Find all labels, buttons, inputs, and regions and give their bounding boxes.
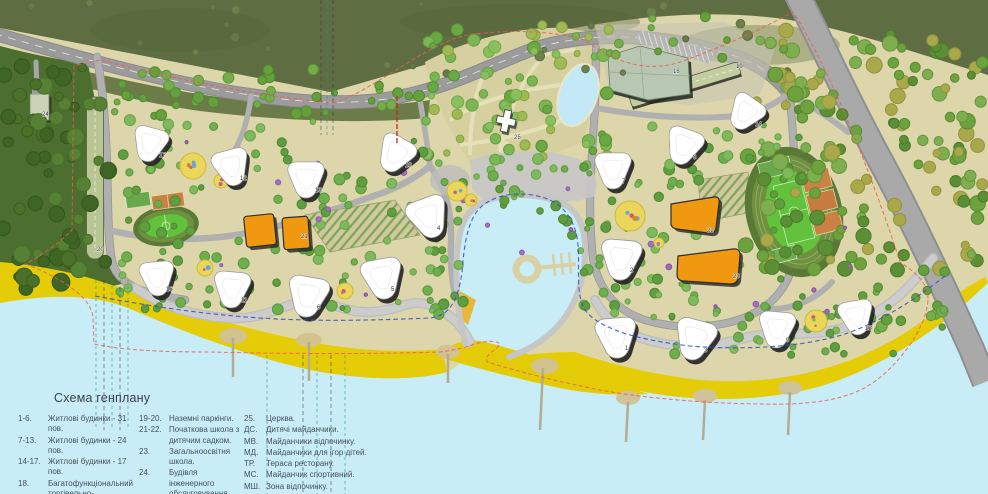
tree <box>231 33 240 42</box>
playground-equipment <box>219 182 223 186</box>
building-number-label: 12 <box>240 176 247 182</box>
tree <box>683 36 689 42</box>
tree <box>345 201 352 208</box>
legend-item: 7-13.Житлові будинки - 24 пов. <box>18 436 136 457</box>
tree <box>585 218 593 226</box>
tree <box>163 119 174 130</box>
tree <box>554 57 566 69</box>
tree <box>914 160 923 169</box>
tree <box>874 283 883 292</box>
tree <box>223 72 234 83</box>
tree <box>542 47 547 52</box>
tree <box>427 297 433 303</box>
legend: Схема генплану 1-6.Житлові будинки - 31 … <box>18 391 448 414</box>
tree <box>212 253 222 263</box>
tree <box>393 88 403 98</box>
tree <box>572 33 579 40</box>
tree <box>620 70 625 75</box>
legend-item: МВ.Майданчики відпочинку. <box>244 437 404 447</box>
facility-number-label: 19 <box>736 64 743 70</box>
tree <box>825 309 830 314</box>
tree <box>801 143 811 153</box>
legend-item-desc: Майданчики для ігор дітей. <box>266 448 404 458</box>
playground-equipment <box>454 191 457 194</box>
legend-item: МД.Майданчики для ігор дітей. <box>244 448 404 458</box>
tree <box>830 343 839 352</box>
tree <box>900 135 909 144</box>
legend-item-desc: Багатофункціональнийторгівельно-розважал… <box>48 479 136 494</box>
school-22 <box>671 197 722 236</box>
playground <box>197 260 213 276</box>
tree <box>69 148 81 160</box>
tree <box>340 221 349 230</box>
legend-item-desc: Житлові будинки - 24 пов. <box>48 436 136 457</box>
legend-item-desc: Церква. <box>266 414 404 424</box>
tree <box>170 196 180 206</box>
tree <box>656 292 662 298</box>
tree <box>778 276 784 282</box>
tree <box>434 309 444 319</box>
tree <box>62 229 77 244</box>
tree <box>552 50 560 58</box>
legend-item-desc: Будівля інженерногообслуговування. <box>169 468 241 494</box>
tree <box>342 273 348 279</box>
tree <box>411 138 416 143</box>
tree <box>758 173 771 186</box>
tree <box>568 231 577 240</box>
tree <box>283 155 292 164</box>
tree <box>940 267 950 277</box>
playground-equipment <box>203 268 206 271</box>
tree <box>183 121 191 129</box>
tree <box>971 139 985 153</box>
tree <box>734 332 744 342</box>
tree <box>543 105 552 114</box>
tree <box>40 128 53 141</box>
tree <box>949 48 961 60</box>
tree <box>458 296 468 306</box>
tree <box>428 93 434 99</box>
tree <box>580 163 589 172</box>
tree <box>50 111 63 124</box>
tree <box>761 302 769 310</box>
tree <box>977 179 988 190</box>
tree <box>277 138 286 147</box>
legend-item-key: 24. <box>139 468 169 494</box>
legend-title: Схема генплану <box>54 391 448 405</box>
tree <box>531 48 538 55</box>
tree <box>364 293 367 296</box>
tree <box>894 214 906 226</box>
building-number-label: 15 <box>865 326 872 332</box>
playground <box>180 153 206 179</box>
tree <box>856 228 871 243</box>
tree <box>418 1 424 7</box>
legend-item: 25.Церква. <box>244 414 404 424</box>
tree <box>172 101 179 108</box>
tree <box>83 98 95 110</box>
tree <box>908 76 917 85</box>
tree <box>713 311 718 316</box>
facility-number-label: 20 <box>97 247 104 253</box>
tree <box>156 303 162 309</box>
legend-item-key: 21-22. <box>139 425 169 446</box>
tree <box>611 50 620 59</box>
tree <box>782 168 793 179</box>
legend-item: ТР.Тераса ресторану. <box>244 459 404 469</box>
playground <box>654 238 664 248</box>
tree <box>759 139 764 144</box>
tree <box>210 123 218 131</box>
tree <box>648 122 657 131</box>
tree <box>357 177 367 187</box>
tree <box>758 149 764 155</box>
tree <box>753 301 759 307</box>
tree <box>817 69 826 78</box>
tree <box>49 192 62 205</box>
tree <box>746 154 754 162</box>
tree <box>440 255 448 263</box>
playground <box>615 201 645 231</box>
tree <box>448 70 459 81</box>
tree <box>866 44 876 54</box>
tree <box>433 268 442 277</box>
legend-item-key: 25. <box>244 414 266 424</box>
tree <box>490 134 500 144</box>
tree <box>27 152 41 166</box>
tree <box>653 274 663 284</box>
tree <box>428 82 439 93</box>
tree <box>785 72 795 82</box>
legend-item: 14-17.Житлові будинки - 17 пов. <box>18 457 136 478</box>
building-number-label: 10 <box>405 163 412 169</box>
playground-equipment <box>472 200 475 203</box>
tree <box>533 154 544 165</box>
tree <box>122 91 131 100</box>
tree <box>22 126 33 137</box>
tree <box>965 170 976 181</box>
tree <box>456 135 464 143</box>
tree <box>82 195 98 211</box>
tree <box>599 288 608 297</box>
tree <box>682 283 690 291</box>
tree <box>971 212 984 225</box>
tree <box>648 25 654 31</box>
tree <box>649 15 656 22</box>
tree <box>569 228 573 232</box>
tree <box>124 115 135 126</box>
tree <box>125 217 131 223</box>
legend-item-key: ТР. <box>244 459 266 469</box>
tree <box>939 324 945 330</box>
tree <box>190 186 198 194</box>
tree <box>934 137 943 146</box>
tree <box>791 188 801 198</box>
building-number-label: 16 <box>166 287 173 293</box>
tree <box>193 92 204 103</box>
tree <box>425 247 433 255</box>
tree <box>846 251 857 262</box>
tree <box>768 67 783 82</box>
legend-item-key: 7-13. <box>18 436 48 457</box>
tree <box>474 174 480 180</box>
tree <box>635 182 640 187</box>
tree <box>977 57 988 69</box>
tree <box>157 228 167 238</box>
tree <box>810 210 825 225</box>
tree <box>927 35 938 46</box>
tree <box>743 31 753 41</box>
tree <box>634 278 641 285</box>
tree <box>456 206 462 212</box>
tree <box>958 196 970 208</box>
tree <box>556 22 567 33</box>
tree <box>150 67 161 78</box>
tree <box>848 265 851 268</box>
tree <box>918 135 928 145</box>
tree <box>756 338 763 345</box>
tree <box>423 286 432 295</box>
tree <box>912 294 920 302</box>
legend-item-desc: Майданчик спортивний. <box>266 470 404 480</box>
tree <box>669 313 675 319</box>
tree <box>910 62 920 72</box>
tree <box>319 193 330 204</box>
playground <box>465 194 477 206</box>
tree <box>765 260 780 275</box>
tree <box>430 43 436 49</box>
tree <box>957 111 968 122</box>
tree <box>312 92 321 101</box>
legend-item: МШ.Зона відпочинку. <box>244 482 404 492</box>
tree <box>138 70 146 78</box>
tree <box>526 29 536 39</box>
tree <box>858 292 867 301</box>
legend-item-key: МШ. <box>244 482 266 492</box>
playground-equipment <box>625 211 629 215</box>
tree <box>439 247 446 254</box>
tree <box>443 45 454 56</box>
tree <box>599 134 611 146</box>
tree <box>954 147 963 156</box>
tree <box>889 118 899 128</box>
tree <box>322 109 329 116</box>
tree <box>670 349 680 359</box>
tree <box>890 263 904 277</box>
tree <box>536 140 547 151</box>
tree <box>793 301 802 310</box>
tree <box>757 250 768 261</box>
tree <box>779 23 794 38</box>
legend-item-desc: Зона відпочинку. <box>266 482 404 492</box>
tree <box>940 306 948 314</box>
tree <box>387 179 397 189</box>
tree <box>897 44 906 53</box>
tree <box>922 69 932 79</box>
tree <box>94 156 103 165</box>
tree <box>235 237 243 245</box>
playground-equipment <box>814 325 816 327</box>
tree <box>52 273 70 291</box>
tree <box>651 314 657 320</box>
tree <box>258 76 267 85</box>
legend-item: 21-22.Початкова школа здитячим садком. <box>139 425 241 446</box>
tree <box>0 221 10 235</box>
tree <box>838 207 847 216</box>
tree <box>224 22 229 27</box>
building-number-label: 14 <box>755 122 762 128</box>
legend-item: ДС.Дитячі майданчики. <box>244 425 404 435</box>
tree <box>810 188 821 199</box>
legend-item-desc: Початкова школа здитячим садком. <box>169 425 241 446</box>
tree <box>647 227 657 237</box>
tree <box>546 116 556 126</box>
tree <box>176 298 186 308</box>
tree <box>518 111 528 121</box>
tree <box>919 265 930 276</box>
building-number-label: 11 <box>241 298 248 304</box>
legend-item-desc: Загальноосвітня школа. <box>169 447 241 468</box>
tree <box>700 12 710 22</box>
tree <box>410 63 416 69</box>
tree <box>122 252 132 262</box>
legend-column: 25.Церква.ДС.Дитячі майданчики.МВ.Майдан… <box>244 414 404 493</box>
tree <box>44 169 53 178</box>
legend-item: 18.Багатофункціональнийторгівельно-розва… <box>18 479 136 494</box>
tree <box>1 109 16 124</box>
tree <box>74 214 84 224</box>
tree <box>386 100 396 110</box>
tree <box>28 196 43 211</box>
tree <box>517 165 523 171</box>
tree <box>884 242 895 253</box>
legend-item-key: 19-20. <box>139 414 169 424</box>
tree <box>155 200 162 207</box>
tree <box>377 102 386 111</box>
tree <box>826 256 834 264</box>
tree <box>585 226 590 231</box>
legend-item-desc: Житлові будинки - 31 пов. <box>48 414 136 435</box>
tree <box>886 305 892 311</box>
tree <box>186 227 194 235</box>
playground <box>805 310 827 332</box>
tree <box>505 78 511 84</box>
tree <box>559 215 568 224</box>
tree <box>822 348 829 355</box>
tree <box>339 194 347 202</box>
tree <box>654 192 663 201</box>
tree <box>713 128 719 134</box>
playground-equipment <box>342 289 346 293</box>
tree <box>899 119 910 130</box>
tree <box>147 166 154 173</box>
tree <box>326 207 330 211</box>
tree <box>723 151 733 161</box>
tree <box>932 186 941 195</box>
tree <box>173 256 183 266</box>
tree <box>3 137 13 147</box>
legend-column: 19-20.Наземні паркінги.21-22.Початкова ш… <box>139 414 241 494</box>
legend-item-key: МС. <box>244 470 266 480</box>
tree <box>858 216 869 227</box>
tree <box>896 316 906 326</box>
masterplan-canvas: 1234567891011121314151617181920212223242… <box>0 0 988 494</box>
tree <box>588 23 594 29</box>
tree <box>666 264 672 270</box>
tree <box>13 88 27 102</box>
tree <box>500 196 509 205</box>
tree <box>722 131 732 141</box>
tree <box>206 286 213 293</box>
tree <box>452 109 462 119</box>
tree <box>173 239 183 249</box>
tree <box>256 124 265 133</box>
tree <box>850 57 862 69</box>
tree <box>824 145 840 161</box>
tree <box>890 350 897 357</box>
tree <box>220 264 223 267</box>
tree <box>139 94 146 101</box>
tree <box>745 313 754 322</box>
legend-item: 1-6.Житлові будинки - 31 пов. <box>18 414 136 435</box>
tree <box>119 272 126 279</box>
legend-item-desc: Наземні паркінги. <box>169 414 241 424</box>
tree <box>772 154 788 170</box>
facility-number-label: 23 <box>733 274 740 280</box>
tree <box>730 345 738 353</box>
legend-item-key: 18. <box>18 479 48 494</box>
tree <box>967 250 975 258</box>
tree <box>714 305 717 308</box>
tree <box>945 112 955 122</box>
tree <box>276 180 281 185</box>
tree <box>310 119 316 125</box>
tree <box>520 250 525 255</box>
tree <box>263 65 273 75</box>
legend-item-desc: Тераса ресторану. <box>266 459 404 469</box>
tree <box>600 87 613 100</box>
legend-item-desc: Житлові будинки - 17 пов. <box>48 457 136 478</box>
tree <box>267 86 276 95</box>
tree <box>601 222 611 232</box>
facility-number-label: 18 <box>673 69 680 75</box>
tree <box>882 36 897 51</box>
facility-number-label: 24 <box>42 112 49 118</box>
tree <box>488 171 498 181</box>
tree <box>668 177 677 186</box>
legend-item: 24.Будівля інженерногообслуговування. <box>139 468 241 494</box>
tree <box>368 98 375 105</box>
tree <box>100 162 117 179</box>
tree <box>114 99 120 105</box>
tree <box>510 89 521 100</box>
tree <box>14 203 25 214</box>
tree <box>156 110 167 121</box>
tree <box>793 245 803 255</box>
legend-item-key: ДС. <box>244 425 266 435</box>
tree <box>388 208 397 217</box>
tree <box>761 234 774 247</box>
tree <box>924 161 936 173</box>
playground-equipment <box>192 163 197 168</box>
tree <box>648 241 654 247</box>
tree <box>468 34 480 46</box>
tree <box>655 48 662 55</box>
tree <box>611 284 620 293</box>
tree <box>781 101 790 110</box>
tree <box>582 65 590 73</box>
tree <box>822 95 836 109</box>
